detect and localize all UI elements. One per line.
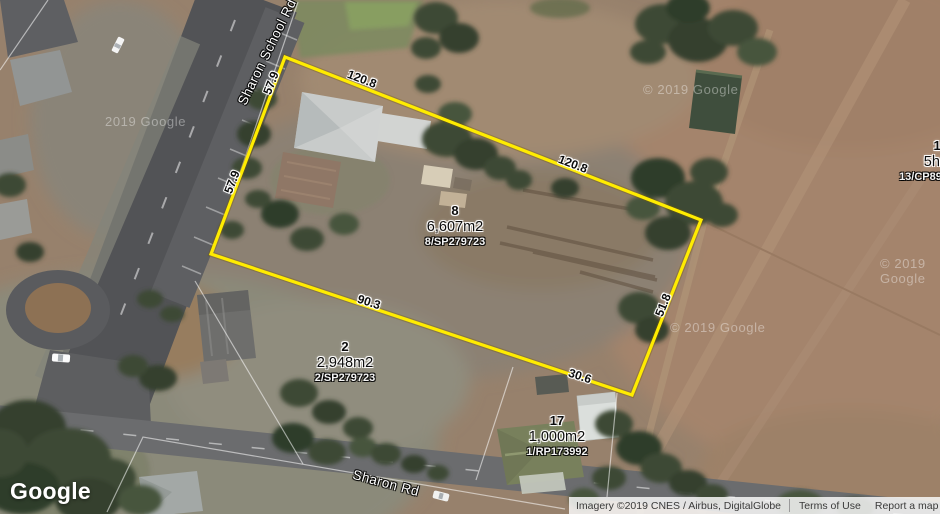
imagery-credit: Imagery ©2019 CNES / Airbus, DigitalGlob…	[576, 500, 781, 512]
dark-shed-lot17	[535, 374, 569, 395]
lot-area: 6,607m2	[425, 219, 486, 236]
lot-number: 18	[899, 139, 940, 154]
lot-plan: 8/SP279723	[425, 236, 486, 249]
roof-left-edge-2	[0, 199, 32, 240]
google-watermark: 2019 Google	[105, 114, 186, 129]
map-attribution: Imagery ©2019 CNES / Airbus, DigitalGlob…	[569, 497, 940, 514]
lot-plan: 13/CP892	[899, 171, 940, 184]
shed-center-1	[421, 165, 453, 188]
parcel-label-lot18: 18 5ha 13/CP892	[899, 139, 940, 183]
shed-top-right	[689, 71, 742, 134]
satellite-imagery	[0, 0, 940, 514]
google-logo[interactable]: Google	[10, 478, 91, 505]
lot-number: 2	[315, 340, 376, 355]
lot-area: 2,948m2	[315, 355, 376, 372]
google-watermark: © 2019 Google	[670, 320, 765, 335]
parcel-label-lot8: 8 6,607m2 8/SP279723	[425, 204, 486, 248]
lot-plan: 2/SP279723	[315, 372, 376, 385]
report-map-error-link[interactable]: Report a map error	[875, 500, 940, 512]
lot-area: 1,000m2	[526, 429, 587, 446]
parcel-label-lot2: 2 2,948m2 2/SP279723	[315, 340, 376, 384]
car-intersection	[52, 353, 71, 362]
attribution-divider	[789, 499, 790, 512]
lot-number: 17	[526, 414, 587, 429]
lot-number: 8	[425, 204, 486, 219]
lot-area: 5ha	[899, 154, 940, 171]
lot-plan: 1/RP173992	[526, 446, 587, 459]
google-watermark: © 2019 Google	[643, 82, 738, 97]
google-watermark: © 2019 Google	[880, 256, 940, 286]
map-viewport[interactable]: 120.8 120.8 57.9 57.9 90.3 30.6 51.8 Sha…	[0, 0, 940, 514]
parcel-label-lot17: 17 1,000m2 1/RP173992	[526, 414, 587, 458]
terms-of-use-link[interactable]: Terms of Use	[799, 500, 861, 512]
